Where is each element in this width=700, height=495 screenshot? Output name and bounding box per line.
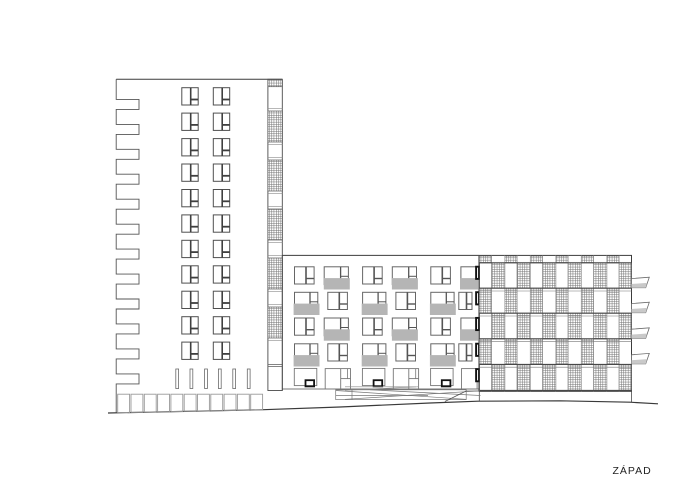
svg-text:ZÁPAD: ZÁPAD — [613, 464, 652, 477]
